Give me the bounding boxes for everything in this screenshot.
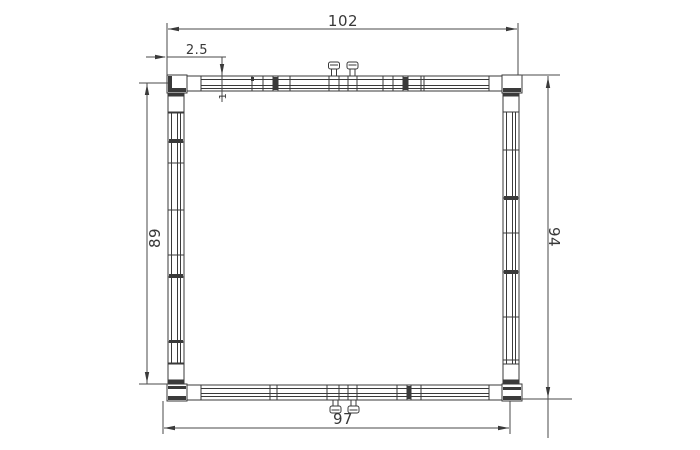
right-rail [503, 76, 519, 400]
rail-joint-ticks [169, 77, 519, 400]
dimension-inner-height-left: 89 [139, 83, 168, 384]
bottom-rail [168, 385, 519, 400]
dimension-label-102: 102 [328, 12, 358, 30]
corner-block-top-right [502, 75, 522, 96]
corner-block-bottom-right [502, 380, 522, 401]
corner-block-bottom-left [167, 380, 187, 401]
dimension-label-1: 1 [218, 93, 229, 100]
dimension-wall-thickness: 1 [218, 93, 229, 100]
dimension-overall-height-right: 94 [521, 75, 572, 438]
frame-outline [167, 62, 522, 413]
left-rail [168, 76, 184, 400]
dimension-label-97: 97 [333, 410, 353, 428]
dimension-label-94: 94 [545, 227, 563, 247]
dimension-label-2-5: 2.5 [186, 43, 208, 58]
technical-drawing-canvas: 102 2.5 1 89 94 [0, 0, 700, 450]
rail-end-caps [168, 76, 519, 400]
clamp-screw-top-1 [329, 62, 340, 76]
frame-plan-drawing: 102 2.5 1 89 94 [0, 0, 700, 450]
corner-block-top-left [167, 75, 187, 96]
top-rail [168, 76, 519, 91]
dimension-overall-width-top: 102 [167, 12, 518, 75]
dimension-label-89: 89 [146, 228, 164, 248]
clamp-screw-top-2 [347, 62, 358, 76]
